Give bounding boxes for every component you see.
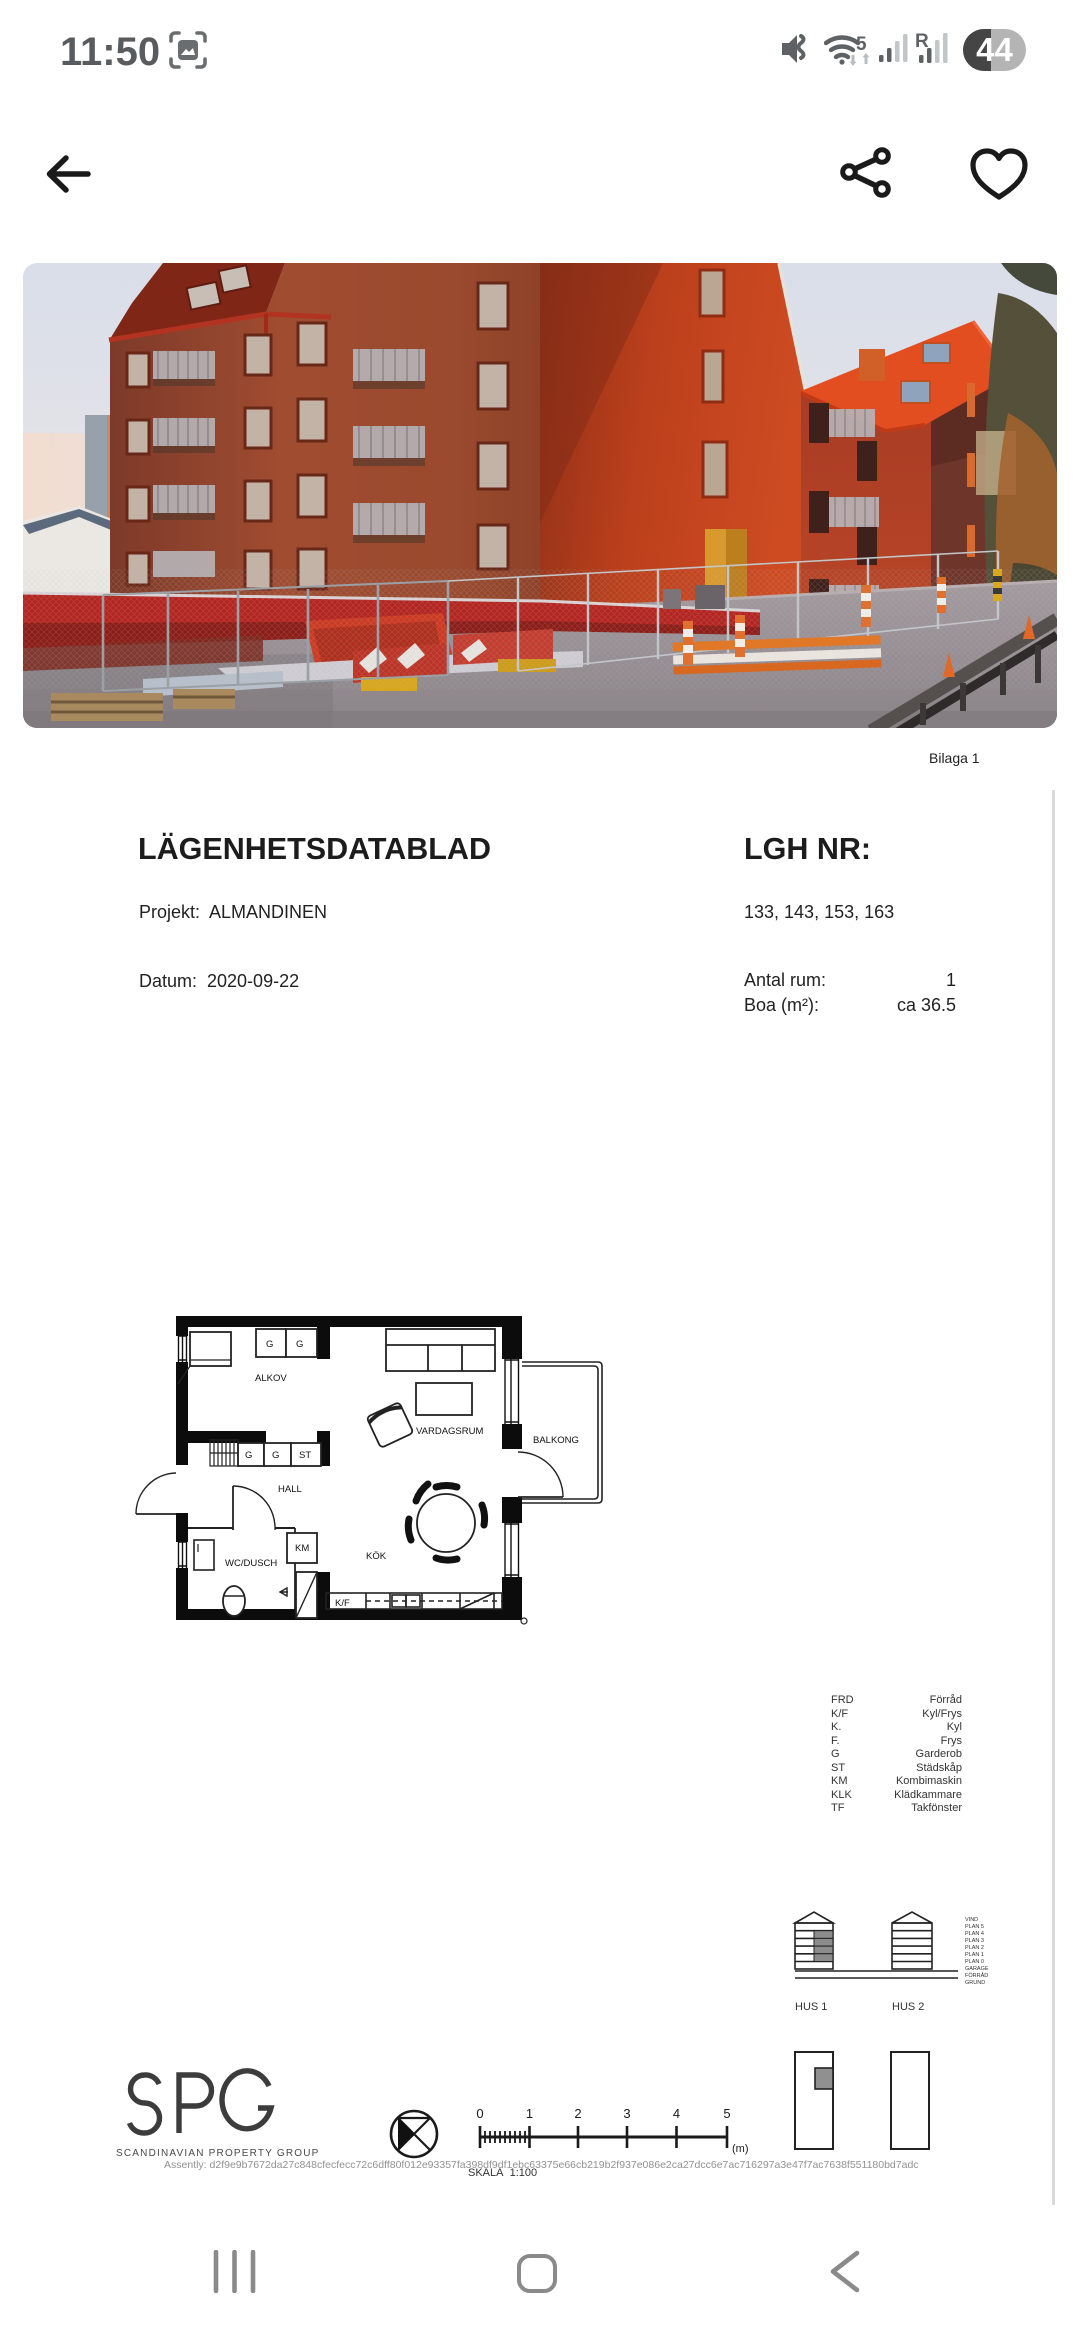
svg-text:3: 3 xyxy=(623,2106,630,2121)
svg-text:WC/DUSCH: WC/DUSCH xyxy=(225,1558,277,1569)
svg-text:G: G xyxy=(245,1450,252,1461)
svg-text:4: 4 xyxy=(673,2106,680,2121)
svg-text:KÖK: KÖK xyxy=(366,1551,387,1562)
svg-text:SCANDINAVIAN PROPERTY GROUP: SCANDINAVIAN PROPERTY GROUP xyxy=(116,2148,320,2159)
svg-text:VARDAGSRUM: VARDAGSRUM xyxy=(416,1426,483,1437)
svg-text:G: G xyxy=(296,1339,303,1350)
svg-text:FÖRRÅD: FÖRRÅD xyxy=(965,1972,988,1979)
svg-text:0: 0 xyxy=(476,2106,483,2121)
svg-text:G: G xyxy=(266,1339,273,1350)
svg-text:PLAN 3: PLAN 3 xyxy=(965,1938,984,1944)
svg-text:PLAN 4: PLAN 4 xyxy=(965,1931,984,1937)
svg-text:2: 2 xyxy=(574,2106,581,2121)
svg-text:ST: ST xyxy=(299,1450,311,1461)
svg-text:PLAN 5: PLAN 5 xyxy=(965,1924,984,1930)
svg-text:GRUND: GRUND xyxy=(965,1980,985,1986)
svg-text:PLAN 2: PLAN 2 xyxy=(965,1945,984,1951)
svg-text:G: G xyxy=(272,1450,279,1461)
svg-text:R: R xyxy=(915,31,929,52)
svg-text:5: 5 xyxy=(856,34,867,55)
svg-text:5: 5 xyxy=(723,2106,730,2121)
svg-text:ALKOV: ALKOV xyxy=(255,1373,287,1384)
svg-text:K/F: K/F xyxy=(335,1598,350,1609)
svg-text:KM: KM xyxy=(295,1543,309,1554)
svg-text:PLAN 1: PLAN 1 xyxy=(965,1952,984,1958)
svg-text:HALL: HALL xyxy=(278,1484,302,1495)
svg-text:VIND: VIND xyxy=(965,1917,978,1923)
svg-text:1: 1 xyxy=(526,2106,533,2121)
svg-text:PLAN 0: PLAN 0 xyxy=(965,1959,984,1965)
svg-text:(m): (m) xyxy=(732,2143,749,2155)
svg-text:BALKONG: BALKONG xyxy=(533,1435,579,1446)
svg-text:GARAGE: GARAGE xyxy=(965,1966,989,1972)
